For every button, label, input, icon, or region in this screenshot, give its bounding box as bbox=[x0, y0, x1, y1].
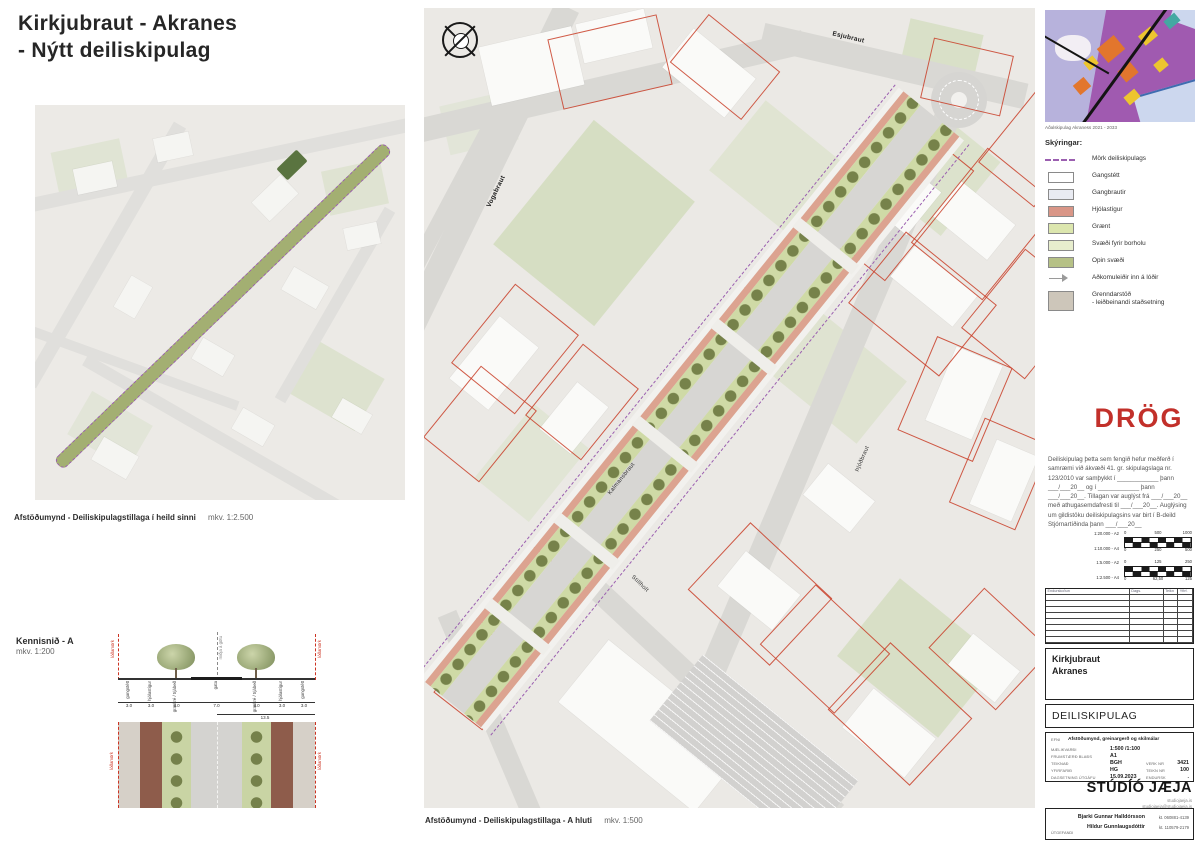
plan-band-road bbox=[191, 722, 242, 808]
overview-caption: Afstöðumynd - Deiliskipulagstillaga í he… bbox=[14, 513, 253, 522]
plan-lot-line-right bbox=[315, 722, 316, 808]
building bbox=[281, 267, 329, 310]
building bbox=[231, 408, 274, 447]
legend-label: Svæði fyrir borholu bbox=[1092, 240, 1146, 248]
field-value: A1 bbox=[1110, 753, 1117, 759]
publisher-person-name: Hildur Gunnlaugsdóttir bbox=[1087, 824, 1145, 830]
revision-cell bbox=[1130, 637, 1164, 643]
plan-band-green-left bbox=[162, 722, 191, 808]
field-label: TEIKN NR bbox=[1146, 768, 1165, 773]
main-map: Vogabraut Esjubraut Kalmansbraut Þjóðbra… bbox=[424, 8, 1035, 808]
street-centerline-label: miðja á götu bbox=[219, 636, 223, 659]
building bbox=[343, 222, 381, 251]
scalebar-scale-label: 1:2.500 - A4 bbox=[1082, 575, 1119, 580]
overview-caption-text: Afstöðumynd - Deiliskipulagstillaga í he… bbox=[14, 513, 196, 522]
studio-name: STÚDÍÓ JÆJA bbox=[1045, 780, 1192, 796]
section-title: Kennisnið - A bbox=[16, 636, 74, 646]
legend-label: Grænt bbox=[1092, 223, 1110, 231]
band-label-0: gangstétt bbox=[126, 681, 130, 699]
section-tree-left bbox=[157, 644, 195, 680]
revision-cell bbox=[1164, 637, 1179, 643]
crosswalk-swatch bbox=[1048, 189, 1074, 200]
section-heading: Kennisnið - A mkv. 1:200 bbox=[16, 636, 74, 656]
legend-item: Hjólastígur bbox=[1045, 205, 1195, 219]
master-plan-inset-map bbox=[1045, 10, 1195, 122]
field-label: FRUMSTÆRÐ BLAÐS bbox=[1051, 754, 1092, 759]
lot-boundary-label-left: lóðamörk bbox=[111, 640, 115, 658]
legend-label: Mörk deiliskipulags bbox=[1092, 155, 1146, 163]
plan-band-sidewalk-right bbox=[293, 722, 315, 808]
inset-commercial-zone bbox=[1097, 35, 1125, 63]
green-swatch bbox=[1048, 223, 1074, 234]
lot-boundary-line-right bbox=[315, 634, 316, 680]
open-area-swatch bbox=[1048, 257, 1074, 268]
scalebar-ticks: 05001000 bbox=[1124, 530, 1192, 535]
legend-item: Aðkomuleiðir inn á lóðir bbox=[1045, 273, 1195, 287]
project-place: Akranes bbox=[1052, 666, 1088, 676]
publisher-person-name: Bjarki Gunnar Halldórsson bbox=[1078, 814, 1145, 820]
borehole-area-swatch bbox=[1048, 240, 1074, 251]
parcel-outline bbox=[670, 14, 781, 120]
approval-statement: Deiliskipulag þetta sem fengið hefur með… bbox=[1048, 455, 1193, 529]
scalebar-scale-label: 1:10.000 - A4 bbox=[1082, 546, 1119, 551]
scalebar-ticks: 0125250 bbox=[1124, 559, 1192, 564]
building bbox=[153, 132, 193, 163]
legend-item: Gangstétt bbox=[1045, 171, 1195, 185]
plan-band-bikepath-right bbox=[271, 722, 293, 808]
legend-label: Opin svæði bbox=[1092, 257, 1124, 265]
cross-section-drawing: lóðamörk lóðamörk miðja á götu gangstétt… bbox=[110, 628, 325, 720]
scalebar-group-1: 1:20.000 - A2 1:10.000 - A4 05001000 025… bbox=[1082, 530, 1192, 556]
field-value: 1:500 /1:100 bbox=[1110, 746, 1140, 752]
project-title-box: KirkjubrautAkranes bbox=[1045, 648, 1194, 700]
field-label: YFIRFARIÐ bbox=[1051, 768, 1072, 773]
parcel-outline bbox=[547, 14, 672, 109]
dim-0: 3.0 bbox=[117, 704, 141, 709]
plan-lot-label-left: lóðamörk bbox=[110, 752, 114, 770]
drawing-info-box: EFNI Afstöðumynd, greinargerð og skilmál… bbox=[1045, 732, 1194, 782]
building bbox=[252, 175, 299, 221]
dim-total: 13.5 bbox=[253, 716, 277, 721]
lot-boundary-label-right: lóðamörk bbox=[318, 640, 322, 658]
sidewalk-swatch bbox=[1048, 172, 1074, 183]
band-label-1: hjólastígur bbox=[148, 681, 152, 701]
document-type: DEILISKIPULAG bbox=[1052, 710, 1137, 722]
field-value: 3421 bbox=[1177, 760, 1189, 766]
dim-2: 4.0 bbox=[165, 704, 189, 709]
publisher-person-kt: kt. 060881-4139 bbox=[1159, 815, 1189, 820]
band-label-5: hjólastígur bbox=[279, 681, 283, 701]
draft-stamp: DRÖG bbox=[1086, 403, 1192, 434]
publisher-label: ÚTGEFANDI bbox=[1051, 830, 1073, 835]
revision-cell bbox=[1178, 637, 1193, 643]
building bbox=[73, 161, 118, 195]
field-label: VERK NR bbox=[1146, 761, 1164, 766]
page-title: Kirkjubraut - Akranes - Nýtt deiliskipul… bbox=[18, 10, 237, 65]
field-value: Afstöðumynd, greinargerð og skilmálar bbox=[1068, 737, 1159, 742]
building bbox=[114, 275, 153, 318]
revision-table: EndurskoðunDags.TeiknYfirf. bbox=[1045, 588, 1194, 644]
legend-item: Grenndarstöð- leiðbeinandi staðsetning bbox=[1045, 290, 1195, 314]
scalebar-group-2: 1:5.000 - A2 1:2.500 - A4 0125250 062,50… bbox=[1082, 559, 1192, 585]
field-label: EFNI bbox=[1051, 737, 1060, 742]
main-map-caption-text: Afstöðumynd - Deiliskipulagstillaga - A … bbox=[425, 816, 592, 825]
north-compass-icon bbox=[442, 22, 478, 58]
bikepath-swatch bbox=[1048, 206, 1074, 217]
legend-label: Aðkomuleiðir inn á lóðir bbox=[1092, 274, 1158, 282]
lot-boundary-line-left bbox=[118, 634, 119, 680]
field-value: 100 bbox=[1180, 767, 1189, 773]
scalebar-ticks: 062,50125 bbox=[1124, 576, 1192, 581]
plan-band-bikepath-left bbox=[140, 722, 162, 808]
document-type-box: DEILISKIPULAG bbox=[1045, 704, 1194, 728]
legend-item: Mörk deiliskipulags bbox=[1045, 154, 1195, 168]
revision-cell bbox=[1046, 637, 1130, 643]
legend-item: Grænt bbox=[1045, 222, 1195, 236]
band-label-6: gangstétt bbox=[301, 681, 305, 699]
building bbox=[91, 437, 139, 480]
scalebar-scale-label: 1:20.000 - A2 bbox=[1082, 531, 1119, 536]
dim-1: 3.0 bbox=[139, 704, 163, 709]
section-scale: mkv. 1:200 bbox=[16, 647, 55, 656]
inset-water bbox=[1133, 73, 1195, 122]
field-value: BGH bbox=[1110, 760, 1122, 766]
building bbox=[191, 338, 234, 377]
legend-label: Gangbrautir bbox=[1092, 189, 1126, 197]
page-title-line1: Kirkjubraut - Akranes bbox=[18, 10, 237, 37]
inset-open-area bbox=[1055, 35, 1091, 61]
publisher-box: ÚTGEFANDI Bjarki Gunnar Halldórsson kt. … bbox=[1045, 808, 1194, 840]
page-title-line2: - Nýtt deiliskipulag bbox=[18, 37, 237, 64]
publisher-person-kt: kt. 110579-2179 bbox=[1159, 825, 1189, 830]
legend-item: Svæði fyrir borholu bbox=[1045, 239, 1195, 253]
inset-mixed-zone bbox=[1153, 57, 1169, 72]
project-name: Kirkjubraut bbox=[1052, 654, 1100, 664]
section-road-surface bbox=[191, 677, 242, 680]
scalebar-ticks: 0250500 bbox=[1124, 547, 1192, 552]
dim-4: 4.0 bbox=[245, 704, 269, 709]
overview-map bbox=[35, 105, 405, 500]
access-arrow-icon bbox=[1062, 274, 1068, 282]
inset-caption: Aðalskipulag Akraness 2021 - 2033 bbox=[1045, 125, 1117, 130]
field-value: HG bbox=[1110, 767, 1118, 773]
plan-band-green-right bbox=[242, 722, 271, 808]
legend-label: Gangstétt bbox=[1092, 172, 1120, 180]
field-label: TEIKNAÐ bbox=[1051, 761, 1069, 766]
plan-lot-label-right: lóðamörk bbox=[318, 752, 322, 770]
legend-heading: Skýringar: bbox=[1045, 138, 1082, 147]
overview-caption-scale: mkv. 1:2.500 bbox=[208, 513, 253, 522]
main-map-caption-scale: mkv. 1:500 bbox=[604, 816, 643, 825]
dim-3: 7.0 bbox=[205, 704, 229, 709]
studio-website: studiojaeja.is bbox=[1167, 798, 1192, 803]
legend-label: Grenndarstöð- leiðbeinandi staðsetning bbox=[1092, 291, 1164, 308]
dim-6: 3.0 bbox=[292, 704, 316, 709]
recycling-station-swatch bbox=[1048, 291, 1074, 311]
plan-lot-line-left bbox=[118, 722, 119, 808]
parcel-outline bbox=[920, 38, 1014, 117]
scalebar-scale-label: 1:5.000 - A2 bbox=[1082, 560, 1119, 565]
building bbox=[332, 398, 372, 434]
plan-boundary-swatch bbox=[1045, 159, 1075, 161]
dim-5: 3.0 bbox=[270, 704, 294, 709]
plan-band-sidewalk-left bbox=[118, 722, 140, 808]
legend-item: Opin svæði bbox=[1045, 256, 1195, 270]
main-map-caption: Afstöðumynd - Deiliskipulagstillaga - A … bbox=[425, 816, 643, 825]
band-label-3: gata bbox=[214, 681, 218, 689]
section-plan-strip: lóðamörk lóðamörk bbox=[110, 722, 325, 808]
access-arrow-icon bbox=[1049, 278, 1063, 279]
section-tree-right bbox=[237, 644, 275, 680]
plan-sheet: Kirkjubraut - Akranes - Nýtt deiliskipul… bbox=[0, 0, 1200, 848]
legend-item: Gangbrautir bbox=[1045, 188, 1195, 202]
legend-label: Hjólastígur bbox=[1092, 206, 1123, 214]
field-label: MÆLIKVARÐI bbox=[1051, 747, 1077, 752]
